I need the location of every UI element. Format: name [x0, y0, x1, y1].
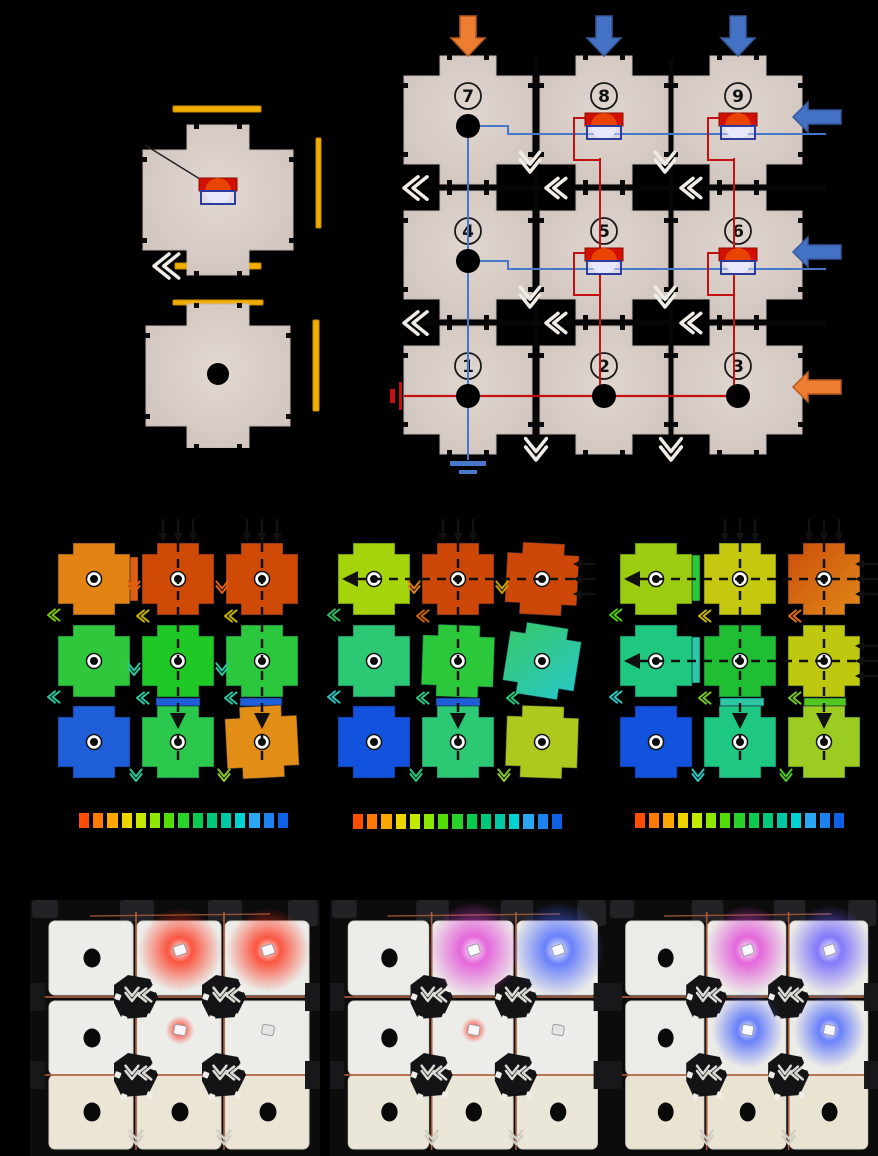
photo-panel-3 [608, 900, 878, 1156]
module-notch [620, 450, 625, 455]
fea-module-hole [370, 657, 378, 665]
module-notch [142, 238, 147, 243]
module-hole [456, 249, 480, 273]
colorbar-segment [423, 813, 435, 830]
module-notch [528, 218, 533, 223]
module-notch [403, 218, 408, 223]
ground-symbol-bar [459, 470, 477, 474]
colorbar-segment [790, 812, 802, 829]
module-notch [403, 152, 408, 157]
module-notch [447, 55, 452, 60]
module-notch [673, 353, 678, 358]
colorbar-segment [522, 813, 534, 830]
load-arrow-head [736, 533, 745, 542]
circuit-grid-panel: 789456123 [388, 8, 858, 493]
module-notch [583, 180, 588, 185]
photo-panel-1 [30, 900, 320, 1156]
module-notch [583, 315, 588, 320]
module-notch [237, 444, 242, 448]
module-notch [664, 152, 669, 157]
led-package [552, 1024, 565, 1036]
module-notch [403, 353, 408, 358]
vertex-connector-cluster [686, 1053, 727, 1101]
led-socket [587, 261, 621, 274]
clamp-shadow [332, 900, 357, 918]
module-notch [754, 55, 759, 60]
colorbar-3 [634, 812, 845, 827]
colorbar-segment [206, 812, 218, 829]
module-number: 8 [598, 87, 610, 107]
module-notch [620, 180, 625, 185]
module-notch [673, 218, 678, 223]
module-hole [456, 114, 480, 138]
colorbar-segment [819, 812, 831, 829]
colorbar-segment [366, 813, 378, 830]
fea-connector-strip [130, 557, 138, 601]
module-notch [528, 287, 533, 292]
colorbar-segment [220, 812, 232, 829]
module-notch [798, 422, 803, 427]
load-arrow-head [174, 533, 183, 542]
edge-connector [864, 983, 878, 1011]
led-component [585, 113, 623, 139]
module-notch [237, 303, 242, 308]
fea-module-hole [90, 657, 98, 665]
vertex-connector-cluster [410, 1053, 452, 1101]
power-supply-bar-short [390, 389, 395, 403]
vertex-connector-cluster [114, 1053, 158, 1101]
led-socket [721, 261, 755, 274]
photo-panel-2 [330, 900, 608, 1156]
module-notch [194, 124, 199, 129]
module-notch [717, 325, 722, 330]
module-notch [754, 450, 759, 455]
module-notch [289, 157, 294, 162]
module-hole [172, 1103, 189, 1122]
led-component [585, 248, 623, 274]
load-arrow-head [243, 533, 252, 542]
copper-electrode-bar [173, 106, 261, 112]
connector-rod-vertical [534, 58, 539, 448]
module-hole [381, 1029, 397, 1048]
fea-panel-2 [320, 515, 598, 815]
colorbar-segment [691, 812, 703, 829]
module-notch [528, 353, 533, 358]
module-hole [84, 1103, 101, 1122]
colorbar-segment [634, 812, 646, 829]
module-notch [447, 190, 452, 195]
fea-module-r2c0 [338, 706, 410, 778]
ground-symbol-bar [450, 461, 486, 466]
module-notch [403, 287, 408, 292]
led-package [823, 1024, 836, 1036]
colorbar-segment [480, 813, 492, 830]
module-notch [539, 218, 544, 223]
edge-connector [30, 1061, 45, 1089]
colorbar-segment [263, 812, 275, 829]
module-notch [539, 422, 544, 427]
fea-module-r2c2 [505, 705, 579, 779]
module-notch [237, 271, 242, 276]
module-notch [798, 287, 803, 292]
led-component [719, 113, 757, 139]
fea-panel-3 [602, 515, 878, 815]
fea-module-hole [652, 738, 660, 746]
module-hole [822, 1103, 838, 1122]
copper-electrode-bar [316, 138, 321, 228]
module-notch [194, 303, 199, 308]
module-hole [84, 1029, 101, 1048]
colorbar-segment [537, 813, 549, 830]
module-notch [717, 190, 722, 195]
colorbar-2 [352, 813, 563, 828]
vertex-connector-cluster [768, 1053, 809, 1101]
colorbar-segment [551, 813, 563, 830]
led-component [719, 248, 757, 274]
fea-module-r0c0 [58, 543, 130, 615]
vertex-connector-cluster [495, 1053, 537, 1101]
colorbar-1 [78, 812, 289, 827]
colorbar-segment [78, 812, 90, 829]
module-notch [403, 83, 408, 88]
colorbar-segment [804, 812, 816, 829]
edge-connector [864, 1061, 878, 1089]
module-notch [717, 315, 722, 320]
module-notch [754, 190, 759, 195]
module-notch [664, 353, 669, 358]
module-notch [673, 83, 678, 88]
edge-connector [30, 983, 45, 1011]
module-notch [484, 325, 489, 330]
fea-module-hole [370, 738, 378, 746]
connector-rod-horizontal [400, 186, 826, 191]
load-arrow-head [805, 533, 814, 542]
connector-rod-horizontal [400, 321, 826, 326]
colorbar-segment [648, 812, 660, 829]
module-hole [740, 1103, 756, 1122]
module-notch [447, 180, 452, 185]
module-notch [754, 325, 759, 330]
module-notch [403, 422, 408, 427]
load-block-arrow-down [721, 16, 755, 56]
led-package [173, 1024, 187, 1036]
module-notch [717, 180, 722, 185]
power-supply-bar-long [399, 382, 402, 410]
module-notch [754, 315, 759, 320]
module-hole [592, 384, 616, 408]
vertex-connector-cluster [202, 975, 246, 1023]
edge-connector [594, 1061, 608, 1089]
module-notch [798, 83, 803, 88]
module-notch [717, 55, 722, 60]
edge-connector [305, 1061, 320, 1089]
module-notch [289, 238, 294, 243]
edge-connector [330, 983, 344, 1011]
module-notch [664, 218, 669, 223]
module-notch [798, 353, 803, 358]
fea-connector-strip [720, 698, 764, 706]
load-arrow-head [273, 533, 282, 542]
load-arrow-head [454, 533, 463, 542]
fea-module-r1c0 [58, 625, 130, 697]
module-notch [286, 414, 291, 419]
colorbar-segment [762, 812, 774, 829]
module-notch [145, 414, 150, 419]
module-hole [726, 384, 750, 408]
module-notch [194, 271, 199, 276]
module-notch [620, 325, 625, 330]
module-number: 7 [462, 87, 474, 107]
colorbar-segment [192, 812, 204, 829]
module-hole [658, 949, 674, 968]
colorbar-segment [719, 812, 731, 829]
edge-connector [305, 983, 320, 1011]
colorbar-segment [248, 812, 260, 829]
module-notch [583, 325, 588, 330]
module-hole [381, 949, 397, 968]
module-notch [194, 444, 199, 448]
fea-module-r1c0 [338, 625, 410, 697]
fea-module-r1c2 [501, 620, 583, 702]
colorbar-segment [163, 812, 175, 829]
fea-module-r2c0 [58, 706, 130, 778]
module-hole [456, 384, 480, 408]
module-notch [484, 180, 489, 185]
load-block-arrow-down [451, 16, 485, 56]
module-notch [539, 353, 544, 358]
module-notch [484, 55, 489, 60]
load-arrow-head [159, 533, 168, 542]
module-notch [620, 315, 625, 320]
module-notch [583, 190, 588, 195]
load-arrow-head [751, 533, 760, 542]
module-notch [583, 55, 588, 60]
module-number: 9 [732, 87, 744, 107]
edge-connector [608, 1061, 622, 1089]
colorbar-segment [106, 812, 118, 829]
clamp-shadow [120, 900, 154, 922]
module-notch [673, 422, 678, 427]
led-socket [587, 126, 621, 139]
module-notch [447, 325, 452, 330]
led-socket [201, 191, 235, 204]
figure-root: 789456123 [0, 0, 878, 1156]
colorbar-segment [277, 812, 289, 829]
module-notch [798, 152, 803, 157]
module-notch [145, 333, 150, 338]
module-notch [484, 315, 489, 320]
colorbar-segment [466, 813, 478, 830]
module-hole [658, 1103, 674, 1122]
colorbar-segment [705, 812, 717, 829]
colorbar-segment [508, 813, 520, 830]
module-notch [754, 180, 759, 185]
colorbar-segment [380, 813, 392, 830]
colorbar-segment [409, 813, 421, 830]
module-hole [658, 1029, 674, 1048]
module-notch [528, 422, 533, 427]
load-arrow-head [721, 533, 730, 542]
fea-module-r2c0 [620, 706, 692, 778]
module-hole [550, 1103, 566, 1122]
exploded-module-panel [130, 88, 350, 448]
led-component [199, 178, 237, 204]
vertex-connector-cluster [114, 975, 158, 1023]
module-notch [142, 157, 147, 162]
module-notch [664, 83, 669, 88]
module-notch [528, 83, 533, 88]
fea-module-hole [90, 575, 98, 583]
module-notch [237, 124, 242, 129]
clamp-shadow [610, 900, 634, 918]
module-notch [664, 422, 669, 427]
connector-rod-vertical [669, 58, 674, 448]
clamp-shadow [208, 900, 242, 922]
load-arrow-head [469, 533, 478, 542]
fea-module-hole [90, 738, 98, 746]
colorbar-segment [149, 812, 161, 829]
colorbar-segment [177, 812, 189, 829]
colorbar-segment [494, 813, 506, 830]
load-arrow-head [439, 533, 448, 542]
assembly-arrow [154, 254, 169, 278]
led-socket [721, 126, 755, 139]
load-arrow-head [820, 533, 829, 542]
module-notch [447, 315, 452, 320]
load-arrow-head [189, 533, 198, 542]
colorbar-segment [135, 812, 147, 829]
load-arrow-head [258, 533, 267, 542]
module-notch [583, 450, 588, 455]
colorbar-segment [234, 812, 246, 829]
colorbar-segment [833, 812, 845, 829]
copper-electrode-bar [313, 320, 319, 411]
colorbar-segment [733, 812, 745, 829]
module-notch [484, 450, 489, 455]
colorbar-segment [395, 813, 407, 830]
module-notch [620, 55, 625, 60]
clamp-shadow [32, 900, 58, 918]
load-arrow-head [835, 533, 844, 542]
module-notch [717, 450, 722, 455]
load-block-arrow-down [587, 16, 621, 56]
module-notch [286, 333, 291, 338]
module-hole [84, 949, 101, 968]
edge-connector [330, 1061, 344, 1089]
module-notch [528, 152, 533, 157]
led-package [467, 1024, 480, 1036]
colorbar-segment [451, 813, 463, 830]
module-notch [539, 83, 544, 88]
colorbar-segment [92, 812, 104, 829]
module-notch [447, 450, 452, 455]
module-hole [381, 1103, 397, 1122]
colorbar-segment [121, 812, 133, 829]
colorbar-segment [352, 813, 364, 830]
module-notch [798, 218, 803, 223]
module-notch [484, 190, 489, 195]
colorbar-segment [677, 812, 689, 829]
fea-panel-1 [40, 515, 318, 815]
colorbar-segment [748, 812, 760, 829]
led-package [741, 1024, 754, 1036]
module-hole [260, 1103, 277, 1122]
module-notch [664, 287, 669, 292]
colorbar-segment [437, 813, 449, 830]
module-hole [466, 1103, 482, 1122]
edge-connector [608, 983, 622, 1011]
module-notch [620, 190, 625, 195]
vertex-connector-cluster [202, 1053, 246, 1101]
colorbar-segment [776, 812, 788, 829]
colorbar-segment [662, 812, 674, 829]
led-package [261, 1024, 275, 1036]
edge-connector [594, 983, 608, 1011]
module-hole [207, 363, 229, 385]
